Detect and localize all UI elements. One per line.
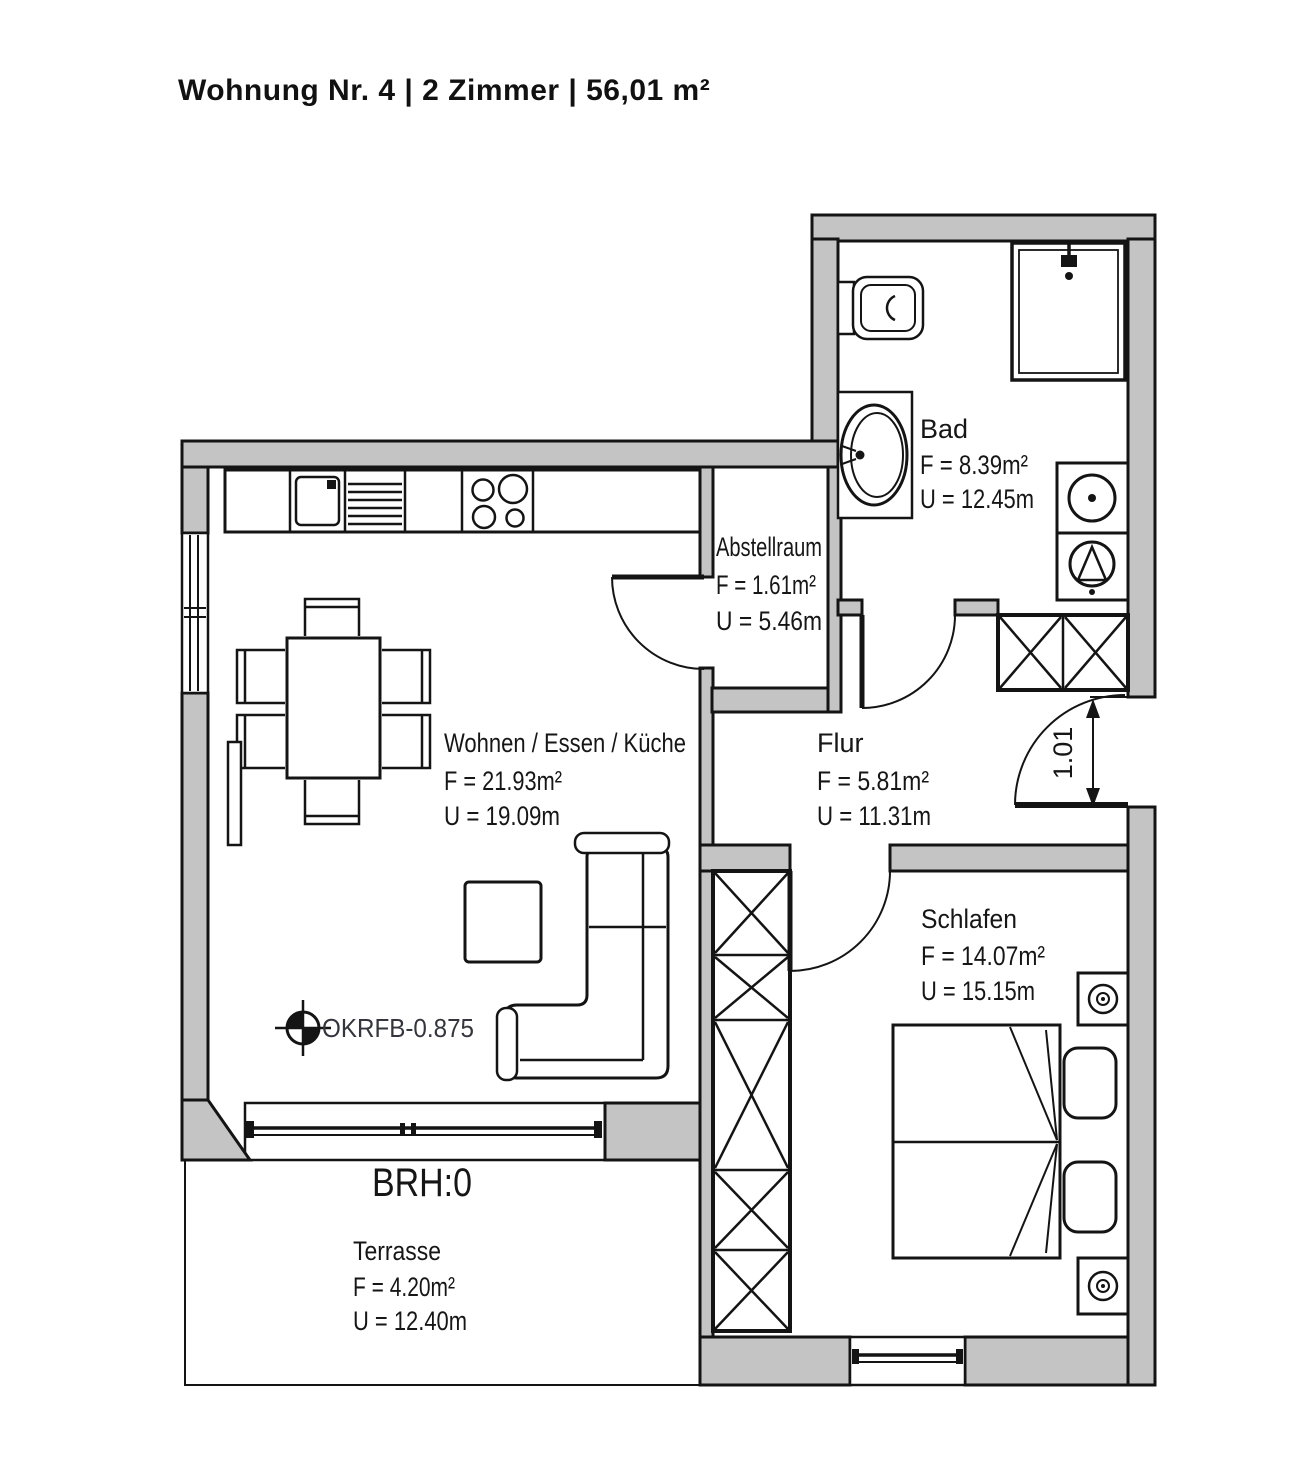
bad-name: Bad	[920, 414, 968, 444]
schlafen-perimeter: U = 15.15m	[921, 976, 1035, 1006]
abstellraum-area: F = 1.61m²	[716, 570, 816, 600]
wohnen-perimeter: U = 19.09m	[444, 801, 560, 831]
abstellraum-name: Abstellraum	[716, 532, 822, 562]
abstellraum-perimeter: U = 5.46m	[716, 606, 822, 636]
flur-perimeter: U = 11.31m	[817, 801, 931, 831]
wohnen-name: Wohnen / Essen / Küche	[444, 728, 686, 758]
bad-label: Bad F = 8.39m² U = 12.45m	[920, 414, 1034, 514]
sill-height-label: BRH:0	[372, 1161, 472, 1205]
bedroom-door	[790, 871, 890, 971]
bath-door	[862, 615, 955, 708]
wohnen-label: Wohnen / Essen / Küche F = 21.93m² U = 1…	[444, 728, 686, 831]
bed	[893, 1025, 1060, 1258]
schlafen-label: Schlafen F = 14.07m² U = 15.15m	[921, 904, 1045, 1006]
shower	[1012, 241, 1125, 380]
floor-plan-drawing: 1.01 Bad F = 8.39m² U = 12.45m Abstellra…	[0, 0, 1289, 1476]
dryer	[1057, 533, 1128, 600]
installation-shaft	[998, 615, 1128, 690]
floor-level-label: OKRFB-0.875	[322, 1013, 474, 1043]
washbasin	[838, 392, 912, 518]
storage-door	[612, 577, 704, 669]
floor-plan-page: Wohnung Nr. 4 | 2 Zimmer | 56,01 m²	[0, 0, 1289, 1476]
nightstand-bottom	[1078, 1258, 1128, 1314]
terrasse-area: F = 4.20m²	[353, 1272, 455, 1302]
entrance-door-width-label: 1.01	[1048, 727, 1078, 780]
schlafen-name: Schlafen	[921, 904, 1017, 934]
bad-area: F = 8.39m²	[920, 450, 1028, 480]
terrasse-name: Terrasse	[353, 1236, 441, 1266]
flur-area: F = 5.81m²	[817, 766, 929, 796]
living-room-window	[182, 533, 208, 693]
wardrobe	[713, 871, 790, 1331]
coffee-table	[465, 882, 541, 962]
tv-board	[228, 742, 241, 845]
nightstand-top	[1078, 973, 1128, 1025]
terrasse-perimeter: U = 12.40m	[353, 1306, 467, 1336]
bedroom-window	[850, 1337, 965, 1385]
entrance-door-dimension: 1.01	[1048, 699, 1100, 807]
terrasse-label: Terrasse F = 4.20m² U = 12.40m	[353, 1236, 467, 1336]
wohnen-area: F = 21.93m²	[444, 766, 562, 796]
pillows	[1064, 1048, 1116, 1232]
dining-table	[287, 638, 380, 778]
bad-perimeter: U = 12.45m	[920, 484, 1034, 514]
toilet	[838, 277, 923, 339]
abstellraum-label: Abstellraum F = 1.61m² U = 5.46m	[716, 532, 822, 636]
flur-label: Flur F = 5.81m² U = 11.31m	[817, 728, 931, 831]
flur-name: Flur	[817, 728, 864, 758]
washing-machine	[1057, 463, 1128, 533]
schlafen-area: F = 14.07m²	[921, 941, 1045, 971]
